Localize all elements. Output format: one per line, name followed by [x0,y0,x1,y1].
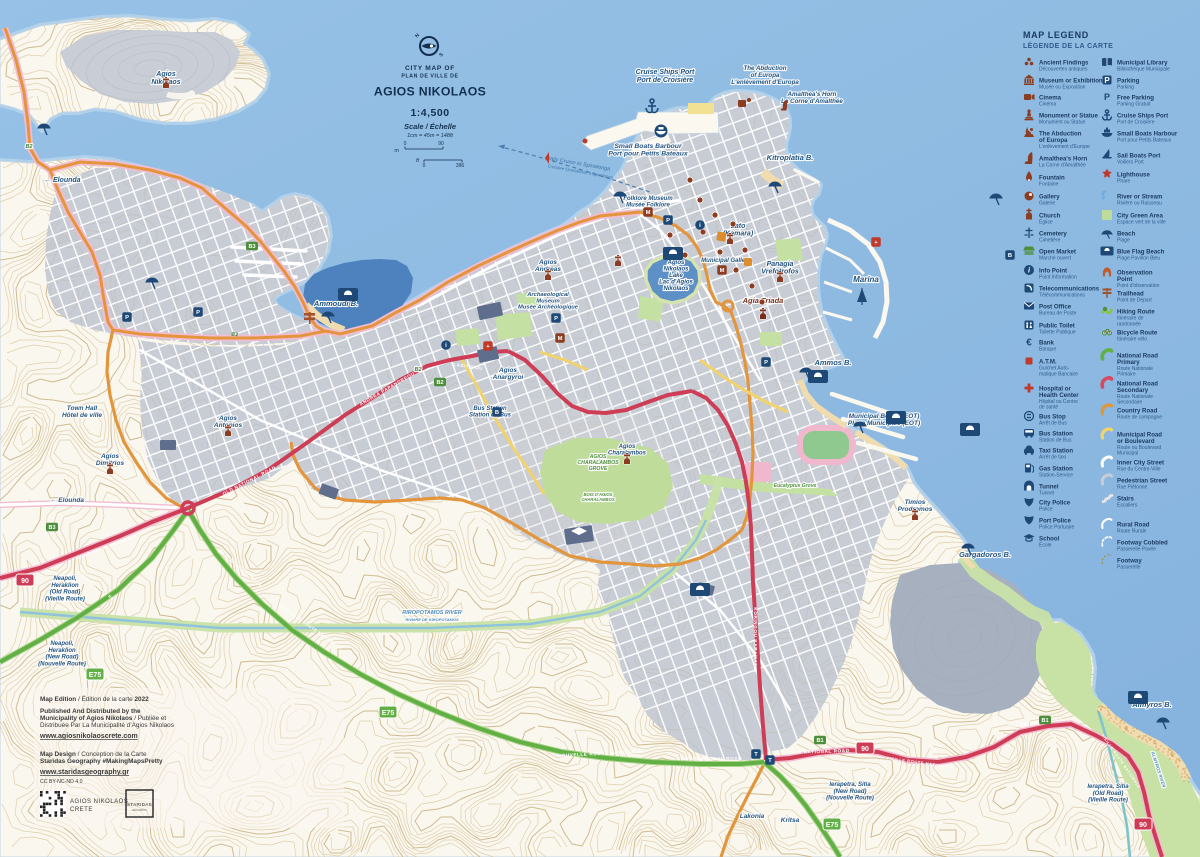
svg-text:90: 90 [1139,822,1147,829]
svg-text:Station de Bus: Station de Bus [1039,438,1072,444]
svg-text:Small Boats Barbour: Small Boats Barbour [614,143,682,150]
svg-text:Plage Pavillon Bleu: Plage Pavillon Bleu [1117,256,1160,262]
svg-text:La Corne d'Amalthée: La Corne d'Amalthée [1039,163,1086,169]
svg-text:Taxi Station: Taxi Station [1039,448,1073,455]
svg-text:(Nouvelle Route): (Nouvelle Route) [38,661,86,667]
svg-text:Cinema: Cinema [1039,95,1062,102]
svg-text:E75: E75 [89,672,102,679]
svg-text:School: School [1039,536,1060,543]
svg-text:NEW NATIONAL ROAD: NEW NATIONAL ROAD [682,756,742,761]
svg-text:Kitroplatia B.: Kitroplatia B. [767,153,814,162]
svg-text:Footway: Footway [1117,558,1142,565]
svg-text:LÉGENDE DE LA CARTE: LÉGENDE DE LA CARTE [1023,41,1113,50]
svg-text:Bus Station: Bus Station [473,406,507,412]
svg-text:E75: E75 [382,710,395,717]
svg-text:Footway Cobbled: Footway Cobbled [1117,540,1168,547]
svg-text:Ammos B.: Ammos B. [813,358,851,367]
svg-text:Agios: Agios [100,453,119,460]
svg-text:(New Road): (New Road) [46,655,79,661]
svg-text:GEOGRAPHY: GEOGRAPHY [132,809,148,812]
svg-text:CHARALAMBOS: CHARALAMBOS [581,497,614,502]
svg-text:M: M [646,210,651,216]
svg-text:Ierapetra, Sitia: Ierapetra, Sitia [1087,784,1129,790]
svg-text:Cimetière: Cimetière [1039,238,1061,244]
svg-text:M: M [720,268,725,274]
svg-text:Voiliers Port: Voiliers Port [1117,160,1144,166]
svg-text:Station de Bus: Station de Bus [469,413,512,419]
svg-text:Open Market: Open Market [1039,249,1076,256]
svg-text:Kritsa: Kritsa [781,817,800,824]
svg-text:Passerelle: Passerelle [1117,565,1141,571]
svg-text:Pedestrian Street: Pedestrian Street [1117,478,1167,485]
svg-text:Route de campagne: Route de campagne [1117,415,1162,421]
svg-text:Musée ou Exposition: Musée ou Exposition [1039,85,1086,91]
svg-text:T: T [768,758,772,764]
svg-text:B3: B3 [48,525,55,531]
svg-text:Tunnel: Tunnel [1039,491,1054,497]
svg-text:Sail Boats Port: Sail Boats Port [1117,153,1160,160]
svg-text:Gallery: Gallery [1039,194,1060,201]
svg-text:Parking Gratuit: Parking Gratuit [1117,102,1151,108]
svg-text:B: B [495,410,499,416]
svg-text:90: 90 [861,746,869,753]
svg-text:Archaeological: Archaeological [526,292,569,298]
svg-text:Agios: Agios [538,259,557,266]
svg-text:Lake: Lake [669,273,683,279]
svg-text:Lakonia: Lakonia [740,813,765,820]
svg-text:Gargadoros B.: Gargadoros B. [959,550,1011,559]
svg-text:B2: B2 [436,380,443,386]
svg-text:B: B [1008,253,1012,259]
svg-text:Gas Station: Gas Station [1039,466,1073,473]
svg-text:396: 396 [456,163,465,169]
svg-text:B1: B1 [816,738,823,744]
svg-text:randonnée: randonnée [1117,321,1141,327]
svg-text:La Corne d'Amalthée: La Corne d'Amalthée [781,98,843,105]
svg-text:Phare: Phare [1117,179,1131,185]
svg-text:RIROPOTAMOS RIVER: RIROPOTAMOS RIVER [402,610,462,616]
svg-text:Musée Archéologique: Musée Archéologique [518,305,579,311]
svg-text:The Abduction: The Abduction [743,65,786,72]
svg-text:(Nouvelle Route): (Nouvelle Route) [826,796,874,802]
svg-text:Rivière ou Ruisseau: Rivière ou Ruisseau [1117,201,1162,207]
svg-text:Cruise Ships Port: Cruise Ships Port [636,69,695,76]
svg-text:Inner City Street: Inner City Street [1117,460,1164,467]
svg-text:Toilette Publique: Toilette Publique [1039,330,1076,336]
svg-text:Distribuée Par La Municipalité: Distribuée Par La Municipalité d’Agios N… [40,722,174,729]
svg-text:Stairs: Stairs [1117,496,1135,503]
svg-text:Amalthea's Horn: Amalthea's Horn [1039,156,1087,163]
svg-text:CC BY-NC-ND 4.0: CC BY-NC-ND 4.0 [40,779,83,785]
svg-text:Country Road: Country Road [1117,408,1158,415]
svg-text:de santé: de santé [1039,405,1058,411]
svg-text:(Old Road): (Old Road) [1093,791,1124,797]
svg-text:Arrêt de Bus: Arrêt de Bus [1039,421,1067,427]
svg-text:Tunnel: Tunnel [1039,484,1059,491]
svg-text:Map Design / Conception de la: Map Design / Conception de la Carte [40,751,147,758]
svg-text:P: P [125,315,129,321]
svg-text:Museum or Exhibition: Museum or Exhibition [1039,78,1103,85]
svg-text:Panagia: Panagia [767,261,794,268]
svg-text:Église: Église [1039,219,1053,226]
svg-text:Church: Church [1039,213,1061,220]
svg-text:AGIOS NIKOLAOS: AGIOS NIKOLAOS [374,85,486,99]
svg-text:Nikolaos: Nikolaos [663,267,689,273]
svg-text:Neapoli,: Neapoli, [53,576,77,582]
svg-text:Ancient Findings: Ancient Findings [1039,60,1089,67]
svg-text:Ierapetra, Sitia: Ierapetra, Sitia [829,782,871,788]
svg-text:RIVIèRE DE KIROPOTAMOS: RIVIèRE DE KIROPOTAMOS [405,617,459,622]
svg-text:Police Portuaire: Police Portuaire [1039,525,1075,531]
svg-text:(Vieille Route): (Vieille Route) [45,596,85,602]
svg-text:Agios: Agios [498,367,517,374]
svg-text:Arrêt de taxi: Arrêt de taxi [1039,455,1066,461]
svg-text:Blue Flag Beach: Blue Flag Beach [1117,249,1165,256]
svg-text:Agios: Agios [667,260,685,266]
svg-text:P: P [1104,76,1110,85]
svg-text:Bicycle Route: Bicycle Route [1117,330,1158,337]
svg-text:Folklore Museum: Folklore Museum [623,196,673,202]
svg-text:Espace vert de la ville: Espace vert de la ville [1117,220,1166,226]
svg-text:Port de Croisière: Port de Croisière [1117,120,1155,126]
svg-text:L'enlèvement d'Europe: L'enlèvement d'Europe [1039,144,1090,150]
svg-text:matique Bancaire: matique Bancaire [1039,371,1078,377]
svg-text:0: 0 [404,141,407,147]
svg-text:P: P [764,360,768,366]
svg-text:Rue du Centre-Ville: Rue du Centre-Ville [1117,467,1161,473]
svg-text:Police: Police [1039,507,1053,513]
svg-text:École: École [1039,542,1052,549]
svg-text:90: 90 [438,141,444,147]
svg-text:M: M [558,336,563,342]
svg-text:Lighthouse: Lighthouse [1117,172,1150,179]
svg-text:Municipality of Agios Nikolaos: Municipality of Agios Nikolaos / Publiée… [40,715,166,722]
svg-text:Info Point: Info Point [1039,268,1067,275]
svg-text:City Green Area: City Green Area [1117,213,1163,220]
svg-text:Free Parking: Free Parking [1117,95,1154,102]
svg-text:Plage: Plage [1117,238,1130,244]
svg-text:B2: B2 [414,367,421,373]
svg-text:Monument ou Statue: Monument ou Statue [1039,120,1086,126]
svg-text:Timios: Timios [905,499,926,506]
svg-text:B2: B2 [25,144,32,150]
svg-text:Agios: Agios [218,415,237,422]
svg-text:Heraklion: Heraklion [51,583,79,589]
svg-text:Marina: Marina [853,275,879,284]
svg-text:90: 90 [21,578,29,585]
svg-text:PLAN DE VILLE DE: PLAN DE VILLE DE [401,74,458,80]
svg-text:Municipal Beach (EOT): Municipal Beach (EOT) [849,413,920,420]
svg-text:Cemetery: Cemetery [1039,231,1067,238]
svg-text:Galerie: Galerie [1039,201,1055,207]
svg-text:Escaliers: Escaliers [1117,503,1138,509]
svg-text:River or Stream: River or Stream [1117,194,1163,201]
svg-text:Port Police: Port Police [1039,518,1071,525]
svg-text:Banque: Banque [1039,347,1056,353]
svg-text:A.T.M.: A.T.M. [1039,359,1057,366]
svg-text:Rue Piétonne: Rue Piétonne [1117,485,1148,491]
svg-text:Scale / Échelle: Scale / Échelle [404,122,456,131]
svg-text:€: € [1026,338,1032,349]
svg-text:Cinéma: Cinéma [1039,102,1056,108]
svg-text:Map Edition / Édition de la ca: Map Edition / Édition de la carte 2022 [40,694,149,703]
svg-text:B1: B1 [1041,718,1048,724]
svg-text:Port de Croisière: Port de Croisière [637,77,694,84]
svg-text:Trailhead: Trailhead [1117,291,1144,298]
svg-text:Telecommunications: Telecommunications [1039,286,1100,293]
svg-text:Hôtel de ville: Hôtel de ville [62,412,102,419]
svg-text:Neapoli,: Neapoli, [50,641,74,647]
svg-text:Municipal: Municipal [1117,451,1138,457]
svg-text:Point d'observation: Point d'observation [1117,283,1160,289]
svg-text:Marché ouvert: Marché ouvert [1039,256,1072,262]
svg-text:Fountain: Fountain [1039,175,1065,182]
svg-text:Public Toilet: Public Toilet [1039,323,1075,330]
svg-text:ft: ft [416,158,420,164]
svg-text:Cruise Ships Port: Cruise Ships Port [1117,113,1168,120]
svg-text:www.staridasgeography.gr: www.staridasgeography.gr [39,769,129,776]
svg-text:Nikolaos: Nikolaos [663,286,689,292]
svg-text:Post Office: Post Office [1039,304,1072,311]
svg-text:Passerelle Pavée: Passerelle Pavée [1117,547,1156,553]
svg-text:Heraklion: Heraklion [48,648,76,654]
svg-text:Bus Stop: Bus Stop [1039,414,1066,421]
svg-text:Town Hall: Town Hall [67,405,98,412]
svg-text:Secondaire: Secondaire [1117,400,1143,406]
svg-text:Municipal Gallery: Municipal Gallery [701,258,751,264]
svg-text:Museum: Museum [536,298,560,304]
svg-text:Hiking Route: Hiking Route [1117,309,1155,316]
svg-text:Anargyroi: Anargyroi [492,374,524,381]
svg-text:GROVE: GROVE [589,466,608,472]
svg-text:Bibliothèque Municipale: Bibliothèque Municipale [1117,67,1170,73]
svg-text:m: m [394,148,399,154]
svg-text:Agios: Agios [618,444,636,450]
svg-text:Parking: Parking [1117,85,1134,91]
svg-text:(New Road): (New Road) [834,789,867,795]
svg-text:B2: B2 [231,332,239,338]
svg-text:Amalthea's Horn: Amalthea's Horn [787,91,837,98]
svg-text:AGIOS NIKOLAOS: AGIOS NIKOLAOS [70,799,128,805]
svg-text:← Elounda: ← Elounda [50,497,84,504]
svg-text:P: P [1104,92,1110,102]
svg-text:Port pour Petits Bateaux: Port pour Petits Bateaux [1117,138,1172,144]
svg-text:CRETE: CRETE [70,807,93,813]
svg-text:E75: E75 [826,822,839,829]
svg-text:(Old Road): (Old Road) [50,590,81,596]
svg-text:Small Boats Harbour: Small Boats Harbour [1117,131,1178,138]
svg-text:P: P [554,316,558,322]
svg-text:B3: B3 [248,244,255,250]
svg-text:Staridas Geography #MakingMaps: Staridas Geography #MakingMapsPretty [40,758,163,765]
svg-text:Port pour Petits Bateaux: Port pour Petits Bateaux [608,151,689,158]
svg-text:Municipal Library: Municipal Library [1117,60,1168,67]
svg-text:i: i [445,342,447,349]
svg-text:P: P [666,218,670,224]
svg-text:Télécommunications: Télécommunications [1039,293,1085,299]
svg-text:City Police: City Police [1039,500,1071,507]
svg-text:Point de Départ: Point de Départ [1117,298,1152,304]
svg-text:Rural Road: Rural Road [1117,522,1150,529]
svg-text:STARIDAS: STARIDAS [127,802,152,807]
svg-text:Bureau de Poste: Bureau de Poste [1039,311,1076,317]
svg-text:Primaire: Primaire [1117,372,1136,378]
svg-text:Bank: Bank [1039,340,1055,347]
svg-text:Station-Service: Station-Service [1039,473,1073,479]
svg-text:KORINGOU KARAMANLI: KORINGOU KARAMANLI [753,607,758,672]
svg-text:Monument or Statue: Monument or Statue [1039,113,1099,120]
svg-text:i: i [699,222,701,229]
svg-text:Published And Distributed by t: Published And Distributed by the [40,708,141,715]
svg-text:1cm = 45m = 148ft: 1cm = 45m = 148ft [407,133,453,139]
svg-text:Route Rurale: Route Rurale [1117,529,1147,535]
svg-text:(Vieille Route): (Vieille Route) [1088,798,1128,804]
svg-text:Beach: Beach [1117,231,1136,238]
svg-text:of Europa: of Europa [751,72,780,79]
svg-text:CITY MAP OF: CITY MAP OF [405,65,455,72]
svg-text:P: P [196,310,200,316]
svg-text:Lac d'Agios: Lac d'Agios [659,280,693,286]
svg-text:MAP LEGEND: MAP LEGEND [1023,30,1089,40]
svg-text:Découvertes antiques: Découvertes antiques [1039,67,1088,73]
svg-text:www.agiosnikolaoscrete.com: www.agiosnikolaoscrete.com [39,733,138,740]
svg-text:0: 0 [423,163,426,169]
svg-text:T: T [754,752,758,758]
svg-text:Eucalyptus Grove: Eucalyptus Grove [774,483,817,489]
svg-text:1:4,500: 1:4,500 [410,107,449,119]
svg-text:L'enlèvement d'Europa: L'enlèvement d'Europa [731,79,799,86]
svg-text:Bus Station: Bus Station [1039,431,1073,438]
svg-text:Itinéraire vélo: Itinéraire vélo [1117,337,1147,343]
svg-text:← Elounda: ← Elounda [44,177,81,184]
svg-text:Fontaine: Fontaine [1039,182,1059,188]
svg-text:Parking: Parking [1117,78,1140,85]
svg-text:Point Information: Point Information [1039,275,1077,281]
